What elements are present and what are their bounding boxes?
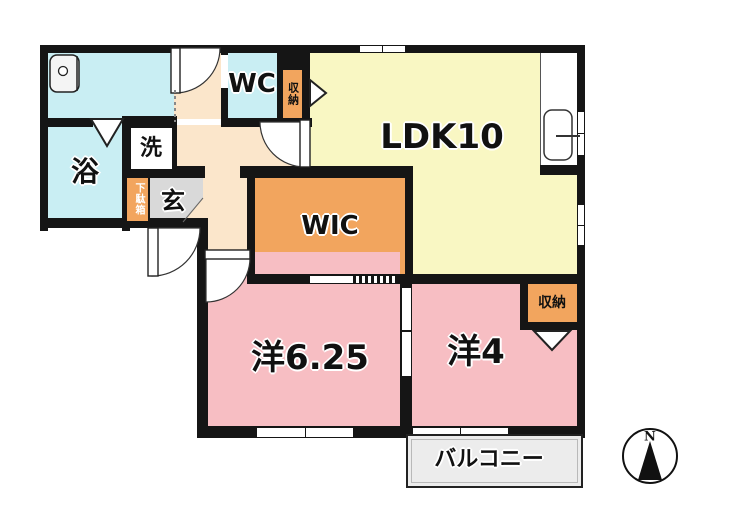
hall-storage-door-marker [310,80,326,106]
bedroom-storage-label: 収納 [538,296,566,310]
hall-storage-label: 収納 [288,82,299,106]
western-4-label: 洋4 [447,335,505,369]
floor-plan: LDK10 WIC 洋6.25 洋4 浴 洗 WC 玄 下駄箱 収納 収納 バル… [0,0,736,506]
wic-label: WIC [301,213,358,239]
plan-vector-layer [0,0,736,506]
entrance-step-line [183,198,203,222]
balcony-label: バルコニー [434,449,544,471]
ldk-door-leaf [300,120,310,167]
wc-label: WC [228,71,276,97]
bedroom-storage-door-marker [534,331,570,350]
room625-door-leaf [205,250,250,259]
laundry-label: 洗 [140,138,162,160]
shoe-cabinet-label: 下駄箱 [133,183,143,216]
bath-label: 浴 [71,158,99,186]
bath-door-marker [91,119,123,146]
compass-north-label: N [644,431,656,444]
entrance-door-swing [152,228,200,276]
room625-door-swing [206,258,250,302]
vanity-drain-icon [59,67,68,76]
ldk-door-swing [260,122,305,167]
entrance-door-leaf [148,228,158,276]
washroom-door-swing [175,48,220,93]
washroom-door-leaf [171,48,180,93]
entrance-label: 玄 [161,189,185,213]
western-625-label: 洋6.25 [251,341,369,375]
ldk-label: LDK10 [380,120,504,154]
